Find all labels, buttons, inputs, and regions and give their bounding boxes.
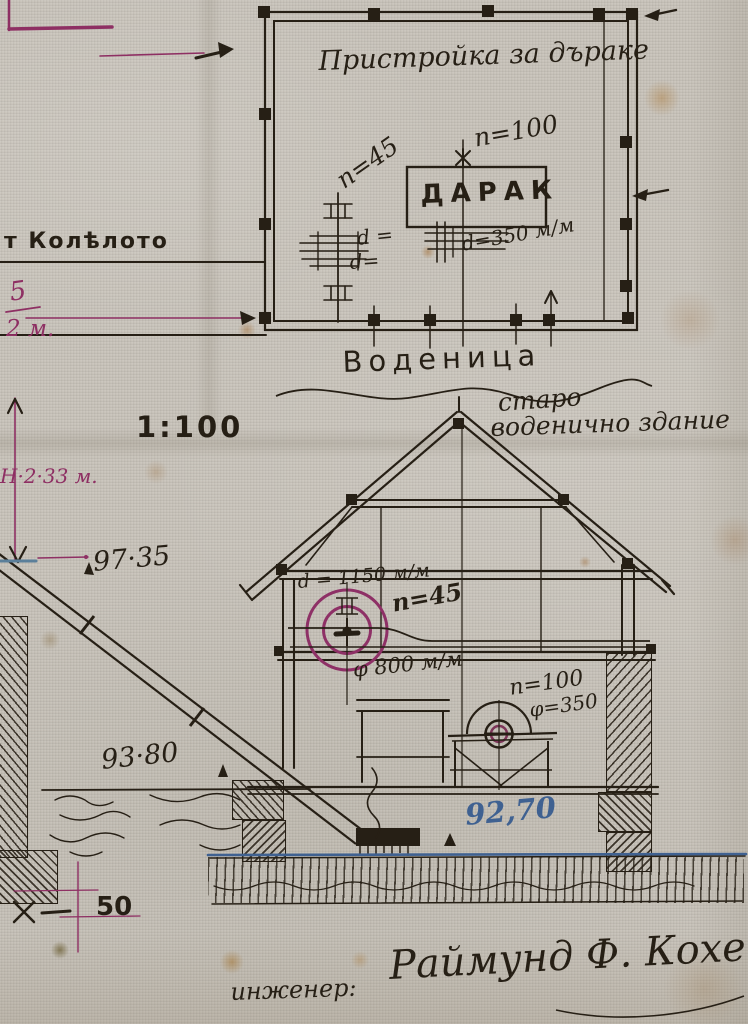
elevation-upper-label: 97·35 [92, 542, 171, 576]
workbench-section [357, 700, 449, 782]
headrace-chute [0, 550, 420, 856]
signature-flourish [556, 996, 744, 1017]
watermill-room-label: Воденица [342, 341, 542, 377]
height-dimension-label: Н·2·33 м. [0, 466, 98, 486]
drawing-sheet: Пристройка за дъраке n=45 n=100 ДАРАК d … [0, 0, 748, 1024]
dimension-arrowhead [240, 311, 256, 325]
break-wavy-line [276, 380, 652, 402]
dimension-five-label: 5 [8, 278, 28, 306]
plan-shaft-d2-label: d= [349, 250, 380, 272]
dimension-fifty-label: 50 [96, 894, 132, 920]
plan-shaft-d1-label: d = [356, 224, 394, 248]
dimension-2m-label: 2 м. [6, 318, 54, 341]
signature-role-label: инженер: [230, 976, 357, 1004]
scale-label: 1:100 [136, 413, 243, 442]
carding-machine-label: ДАРАК [420, 177, 560, 208]
elevation-water-label: 92,70 [464, 793, 557, 830]
elevation-ground-label: 93·80 [100, 739, 180, 774]
water-wheel-section [288, 582, 650, 705]
channel-wheel-label: т Колѣлото [4, 231, 169, 253]
